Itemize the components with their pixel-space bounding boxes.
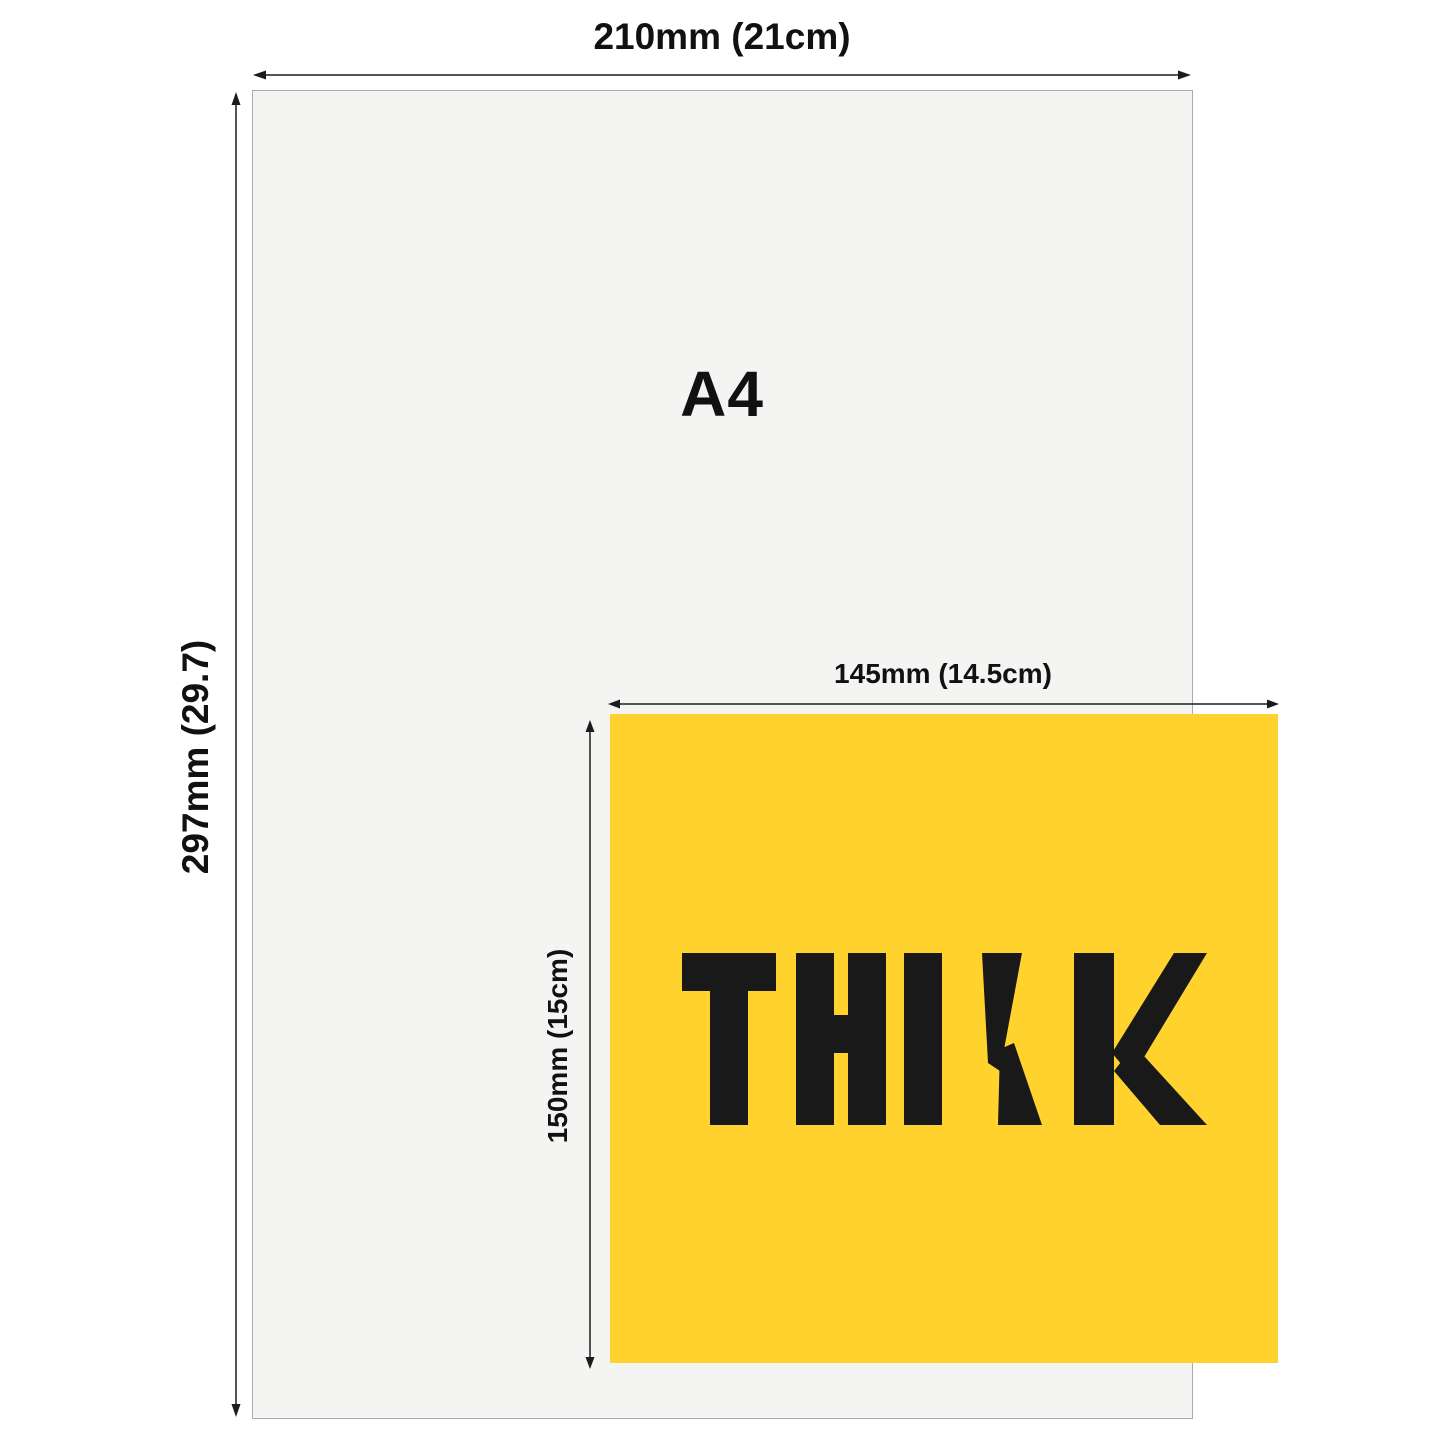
think-sticker: THINK [610, 714, 1278, 1363]
sticker-height-arrow-icon [583, 719, 597, 1370]
size-comparison-diagram: A4 210mm (21cm) 297mm (29.7) 145mm (14.5… [0, 0, 1445, 1445]
letter-k [1074, 953, 1207, 1125]
sticker-width-arrow-icon [607, 697, 1280, 711]
think-logo [682, 953, 1207, 1125]
letter-i [904, 953, 942, 1125]
sticker-height-dimension-label: 150mm (15cm) [542, 949, 574, 1144]
a4-sheet-label: A4 [680, 357, 764, 431]
a4-height-arrow-icon [229, 91, 243, 1418]
letter-t [682, 953, 776, 1125]
a4-width-arrow-icon [252, 68, 1192, 82]
letter-n-stylized [982, 953, 1042, 1125]
sticker-width-dimension-label: 145mm (14.5cm) [834, 658, 1052, 690]
letter-h [796, 953, 886, 1125]
a4-height-dimension-label: 297mm (29.7) [175, 640, 217, 874]
a4-width-dimension-label: 210mm (21cm) [593, 16, 850, 58]
